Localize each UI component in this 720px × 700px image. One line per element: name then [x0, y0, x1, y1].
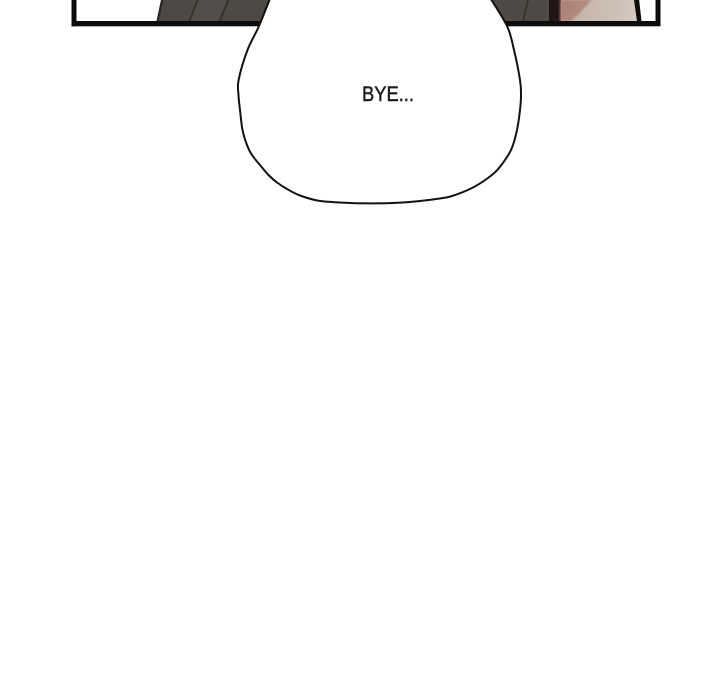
- svg-text:BYE...: BYE...: [362, 83, 414, 106]
